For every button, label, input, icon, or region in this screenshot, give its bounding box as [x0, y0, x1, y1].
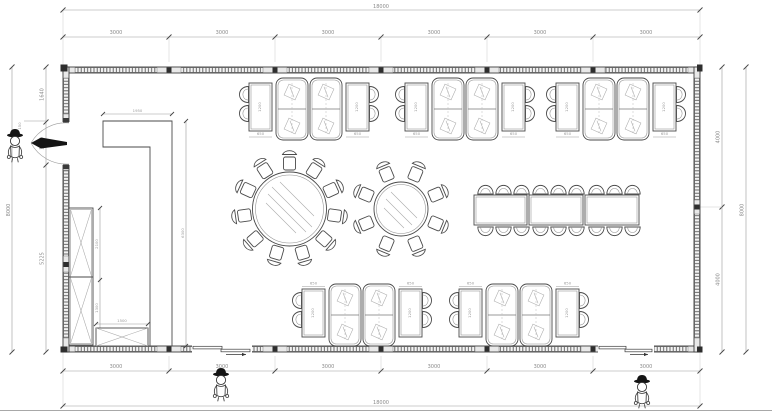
svg-text:650: 650 [510, 131, 518, 136]
svg-text:650: 650 [661, 131, 669, 136]
dim-label-overall-width-bottom: 18000 [373, 400, 389, 406]
svg-text:650: 650 [467, 281, 475, 286]
banquet-table [474, 185, 640, 235]
person-figure-entry [7, 129, 23, 162]
dim-label-left-segment-3: 5225 [40, 252, 46, 265]
svg-text:1200: 1200 [354, 102, 359, 112]
svg-text:650: 650 [413, 131, 421, 136]
round-table-small [352, 160, 450, 258]
bar-counter: 1950 6300 [101, 108, 188, 348]
dim-label-right-segment-2: 4000 [716, 273, 722, 286]
svg-text:650: 650 [564, 281, 572, 286]
svg-text:1200: 1200 [467, 308, 472, 318]
svg-text:1200: 1200 [310, 308, 315, 318]
svg-text:1200: 1200 [564, 308, 569, 318]
top-bay-dimensions: 3000 3000 3000 3000 3000 3000 [61, 30, 703, 40]
left-overall-dimension: 8000 [6, 65, 15, 355]
dim-label-bottom-bay-4: 3000 [428, 364, 441, 370]
dim-label-bottom-bay-6: 3000 [640, 364, 653, 370]
door-slide-arrow [644, 353, 648, 356]
dim-label-top-bay-5: 3000 [534, 30, 547, 36]
floor-plan-drawing: 18000 3000 3000 3000 3000 3000 3000 3000… [0, 0, 772, 414]
dim-label-left-segment-1: 1640 [40, 88, 46, 101]
person-figure-bottom-right [634, 375, 650, 408]
bottom-overall-dimension: 18000 [61, 400, 703, 409]
person-figure-bottom-center [213, 368, 229, 401]
top-overall-dimension: 18000 [61, 4, 703, 13]
sliding-door-bottom-center [192, 345, 252, 356]
svg-text:650: 650 [310, 281, 318, 286]
dim-label-sideboard-width: 1500 [117, 318, 127, 323]
dim-label-bottom-bay-5: 3000 [534, 364, 547, 370]
dim-label-overall-width-top: 18000 [373, 4, 389, 10]
svg-text:650: 650 [564, 131, 572, 136]
svg-text:1200: 1200 [257, 102, 262, 112]
dim-label-door-offset: 150 [17, 122, 22, 130]
sideboard: 1500 [94, 318, 150, 346]
entry-door [31, 118, 70, 169]
svg-text:1200: 1200 [564, 102, 569, 112]
right-segment-dimensions: 4000 4000 [700, 65, 725, 355]
dim-label-overall-height-right: 8000 [740, 204, 746, 217]
door-slide-arrow [242, 353, 246, 356]
svg-text:1200: 1200 [407, 308, 412, 318]
right-overall-dimension: 8000 [740, 65, 749, 355]
dim-label-top-bay-2: 3000 [216, 30, 229, 36]
svg-text:650: 650 [407, 281, 415, 286]
dim-label-top-bay-4: 3000 [428, 30, 441, 36]
floor-plan-screenshot: 18000 3000 3000 3000 3000 3000 3000 3000… [0, 0, 772, 414]
left-segment-dimensions: 1640 1135 5225 150 [17, 65, 49, 355]
dim-label-cabinet-upper: 2100 [94, 239, 99, 249]
svg-text:1200: 1200 [413, 102, 418, 112]
svg-text:650: 650 [354, 131, 362, 136]
door-leaf [31, 138, 67, 149]
dim-label-counter-width: 1950 [133, 108, 143, 113]
dim-label-cabinet-lower: 1300 [94, 303, 99, 313]
svg-text:1200: 1200 [510, 102, 515, 112]
sliding-door-bottom-right [598, 345, 654, 356]
svg-text:650: 650 [257, 131, 265, 136]
dim-label-bottom-bay-3: 3000 [322, 364, 335, 370]
dim-label-top-bay-6: 3000 [640, 30, 653, 36]
dim-label-counter-length: 6300 [180, 228, 185, 238]
bottom-bay-dimensions: 3000 3000 3000 3000 3000 3000 [61, 364, 703, 374]
dim-label-bottom-bay-1: 3000 [110, 364, 123, 370]
dim-label-overall-height-left: 8000 [6, 204, 12, 217]
dim-label-top-bay-1: 3000 [110, 30, 123, 36]
svg-text:1200: 1200 [661, 102, 666, 112]
dim-label-top-bay-3: 3000 [322, 30, 335, 36]
dim-label-right-segment-1: 4000 [716, 131, 722, 144]
furniture-layer: 1950 6300 2100 1300 1500 650 1200 650 12… [69, 78, 686, 348]
round-table-large [231, 151, 348, 267]
